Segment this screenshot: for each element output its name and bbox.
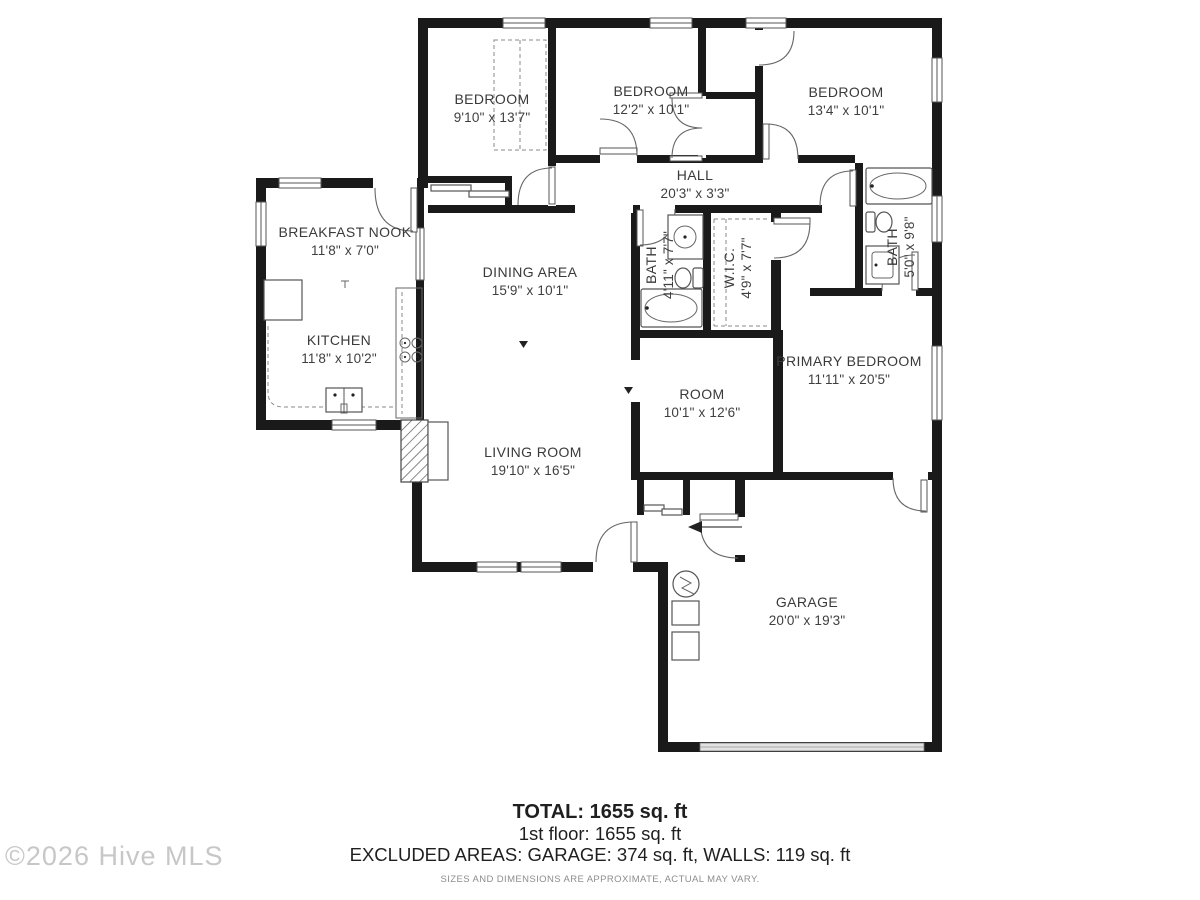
door-icon <box>700 514 738 558</box>
room-name: ROOM <box>679 386 724 402</box>
room-label-garage: GARAGE 20'0" x 19'3" <box>769 594 846 628</box>
window-icon <box>932 346 942 420</box>
room-dims: 4'11" x 7'7" <box>661 231 676 299</box>
window-icon <box>279 178 321 188</box>
room-dims: 4'9" x 7'7" <box>739 237 754 298</box>
room-label-bedroom2: BEDROOM 12'2" x 10'1" <box>613 83 690 117</box>
door-icon <box>820 170 856 206</box>
room-dims: 11'8" x 10'2" <box>301 351 377 366</box>
room-labels: BEDROOM 9'10" x 13'7" BEDROOM 12'2" x 10… <box>279 83 922 628</box>
summary-disclaimer: SIZES AND DIMENSIONS ARE APPROXIMATE, AC… <box>0 874 1200 885</box>
room-name: BATH <box>643 246 659 284</box>
door-icon <box>759 31 794 65</box>
door-icon <box>600 119 637 156</box>
door-icon <box>518 167 555 205</box>
room-dims: 20'0" x 19'3" <box>769 613 846 628</box>
room-dims: 19'10" x 16'5" <box>491 463 575 478</box>
window-icon <box>746 18 786 28</box>
room-label-hall: HALL 20'3" x 3'3" <box>661 167 730 201</box>
room-label-bedroom1: BEDROOM 9'10" x 13'7" <box>454 91 531 125</box>
mls-watermark: ©2026 Hive MLS <box>5 841 224 872</box>
room-name: W.I.C. <box>721 248 737 289</box>
room-name: LIVING ROOM <box>484 444 582 460</box>
window-icon <box>650 18 692 28</box>
window-icon <box>503 18 545 28</box>
room-name: BEDROOM <box>454 91 529 107</box>
tick-marker <box>624 387 633 394</box>
toilet-icon <box>675 268 703 288</box>
room-dims: 5'0" x 9'8" <box>902 216 917 277</box>
room-label-bedroom3: BEDROOM 13'4" x 10'1" <box>808 84 885 118</box>
room-dims: 11'11" x 20'5" <box>808 372 890 387</box>
floorplan-drawing: BEDROOM 9'10" x 13'7" BEDROOM 12'2" x 10… <box>0 0 1200 900</box>
room-label-living: LIVING ROOM 19'10" x 16'5" <box>484 444 582 478</box>
window-icon <box>332 420 376 430</box>
summary-total: TOTAL: 1655 sq. ft <box>0 801 1200 823</box>
room-dims: 10'1" x 12'6" <box>664 405 741 420</box>
room-name: BATH <box>884 228 900 266</box>
tick-marker <box>519 341 528 348</box>
room-name: KITCHEN <box>307 332 371 348</box>
room-name: PRIMARY BEDROOM <box>776 353 922 369</box>
room-dims: 13'4" x 10'1" <box>808 103 885 118</box>
sliding-door-icon <box>644 505 682 515</box>
room-label-breakfast-nook: BREAKFAST NOOK 11'8" x 7'0" <box>279 224 412 258</box>
room-label-kitchen: KITCHEN 11'8" x 10'2" <box>301 332 377 366</box>
fireplace-icon <box>401 420 448 482</box>
water-heater-icon <box>673 571 699 597</box>
entry-arrow-icon <box>688 521 742 533</box>
appliance-icon <box>672 601 699 625</box>
bathtub-icon <box>866 168 932 204</box>
front-door-icon <box>596 522 637 562</box>
room-name: DINING AREA <box>483 264 578 280</box>
room-dims: 9'10" x 13'7" <box>454 110 531 125</box>
room-name: GARAGE <box>776 594 838 610</box>
window-icon <box>932 196 942 242</box>
window-icon <box>256 202 266 246</box>
pass-through-icon <box>416 228 424 280</box>
floorplan-page: BEDROOM 9'10" x 13'7" BEDROOM 12'2" x 10… <box>0 0 1200 900</box>
room-label-dining: DINING AREA 15'9" x 10'1" <box>483 264 578 298</box>
room-name: BEDROOM <box>808 84 883 100</box>
room-dims: 12'2" x 10'1" <box>613 102 690 117</box>
sliding-door-icon <box>431 185 509 197</box>
room-dims: 11'8" x 7'0" <box>311 243 379 258</box>
room-dims: 15'9" x 10'1" <box>492 283 569 298</box>
fixtures <box>264 40 932 751</box>
window-icon <box>521 562 561 572</box>
appliance-icon <box>672 632 699 660</box>
room-label-room: ROOM 10'1" x 12'6" <box>664 386 741 420</box>
kitchen-sink-icon <box>326 388 362 413</box>
cabinet-icon <box>264 280 302 320</box>
door-icon <box>763 124 798 159</box>
window-icon <box>477 562 517 572</box>
window-icon <box>932 58 942 102</box>
room-dims: 20'3" x 3'3" <box>661 186 730 201</box>
door-icon <box>893 478 927 512</box>
room-label-primary: PRIMARY BEDROOM 11'11" x 20'5" <box>776 353 922 387</box>
garage-door-icon <box>700 743 924 751</box>
ceiling-symbol-icon <box>341 281 349 288</box>
room-name: BEDROOM <box>613 83 688 99</box>
room-name: HALL <box>677 167 714 183</box>
room-name: BREAKFAST NOOK <box>279 224 412 240</box>
